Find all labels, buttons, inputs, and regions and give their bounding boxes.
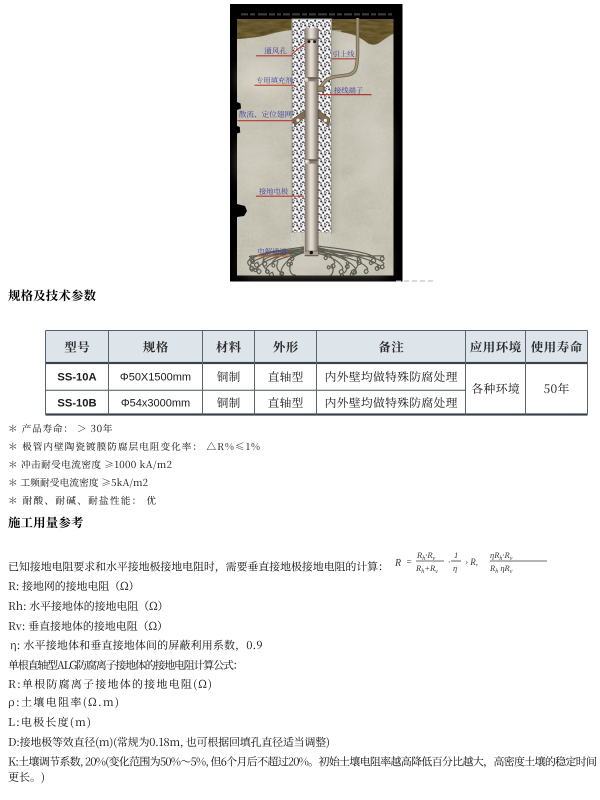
- svg-text:η: η: [453, 563, 457, 573]
- svg-text:› R,: › R,: [465, 557, 478, 567]
- svg-text:SS-10B: SS-10B: [57, 398, 96, 410]
- svg-text:=: =: [406, 557, 412, 567]
- svg-text:Rh·Rv: Rh·Rv: [416, 550, 436, 562]
- svg-text:Φ50X1500mm: Φ50X1500mm: [120, 372, 191, 384]
- svg-text:Rh ηRv: Rh ηRv: [489, 563, 513, 575]
- svg-text:·: ·: [448, 557, 450, 567]
- svg-text:SS-10A: SS-10A: [57, 372, 96, 384]
- svg-text:Rh+Rv: Rh+Rv: [415, 563, 438, 575]
- svg-text:1: 1: [454, 550, 458, 560]
- svg-text:ηRh·Rv: ηRh·Rv: [490, 550, 513, 562]
- svg-text:R: R: [394, 558, 401, 569]
- svg-text:Φ54x3000mm: Φ54x3000mm: [121, 398, 190, 410]
